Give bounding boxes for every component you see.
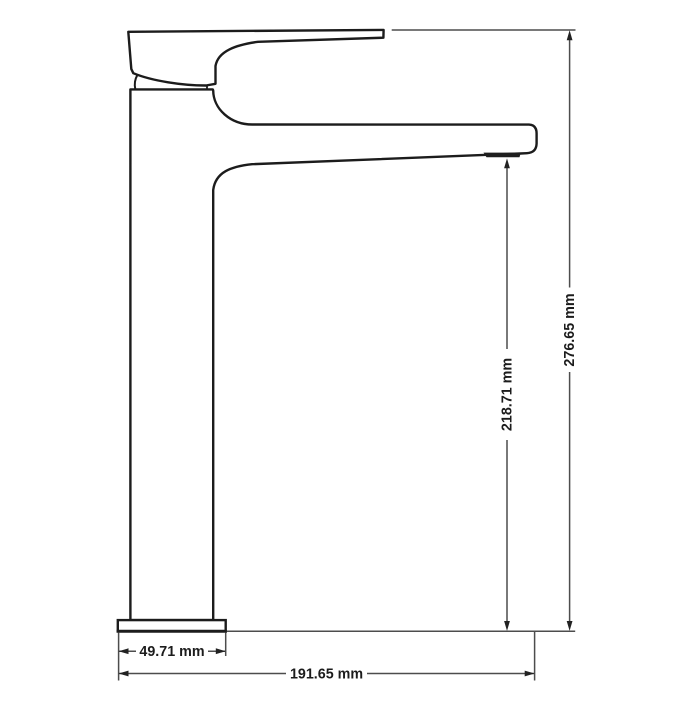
svg-text:218.71 mm: 218.71 mm [500,358,516,431]
svg-text:49.71 mm: 49.71 mm [139,644,204,660]
svg-text:276.65 mm: 276.65 mm [562,293,578,366]
svg-text:191.65 mm: 191.65 mm [290,667,363,683]
